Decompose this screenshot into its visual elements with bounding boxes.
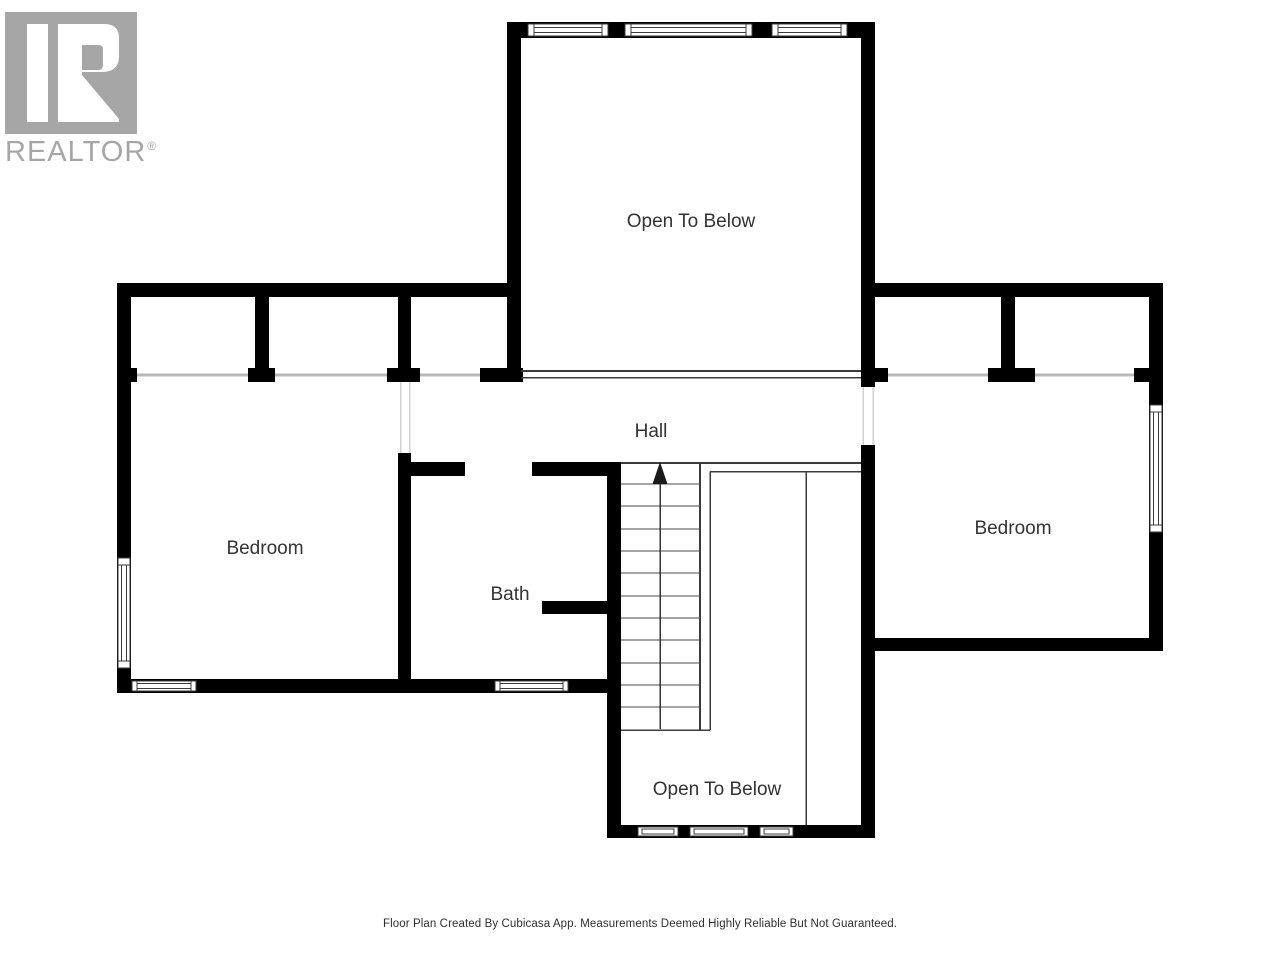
room-label-bath: Bath [490,584,529,605]
wall [532,462,621,476]
wall [117,283,507,297]
wall [398,453,411,693]
window [772,24,847,36]
room-label-open-to-below-bottom: Open To Below [653,779,782,800]
room-label-hall: Hall [635,421,668,442]
wall [507,22,521,378]
window [760,827,793,836]
window [528,24,608,36]
railings [521,371,861,825]
wall-stub [480,368,523,382]
wall-stub [988,368,1035,382]
room-label-open-to-below-top: Open To Below [627,211,756,232]
wall-stub [117,368,137,382]
closet-divider-wall [255,297,269,368]
stair-up-arrow-icon [653,462,668,484]
footer-disclaimer: Floor Plan Created By Cubicasa App. Meas… [0,918,1280,930]
window [118,558,130,668]
wall [875,638,1163,651]
wall-stub [387,368,420,382]
wall [861,22,875,387]
closet-divider-wall [1001,297,1015,368]
window [495,681,568,691]
wall [542,601,621,614]
window [690,827,748,836]
staircase [621,462,700,729]
window [1150,405,1162,532]
closet-divider-wall [398,297,411,368]
wall-stub [248,368,275,382]
room-label-bedroom-right: Bedroom [974,518,1051,539]
wall [398,462,465,476]
window [638,827,678,836]
wall [607,462,621,838]
door-openings [401,382,874,453]
window [132,681,196,691]
wall [875,368,888,382]
window [625,24,752,36]
wall-stub [1134,368,1163,382]
wall [875,283,1163,297]
floor-plan-drawing: Open To Below Hall Bedroom Bath Bedroom … [0,0,1280,960]
floor-plan-page: REALTOR® [0,0,1280,960]
room-label-bedroom-left: Bedroom [226,538,303,559]
wall [861,445,875,838]
